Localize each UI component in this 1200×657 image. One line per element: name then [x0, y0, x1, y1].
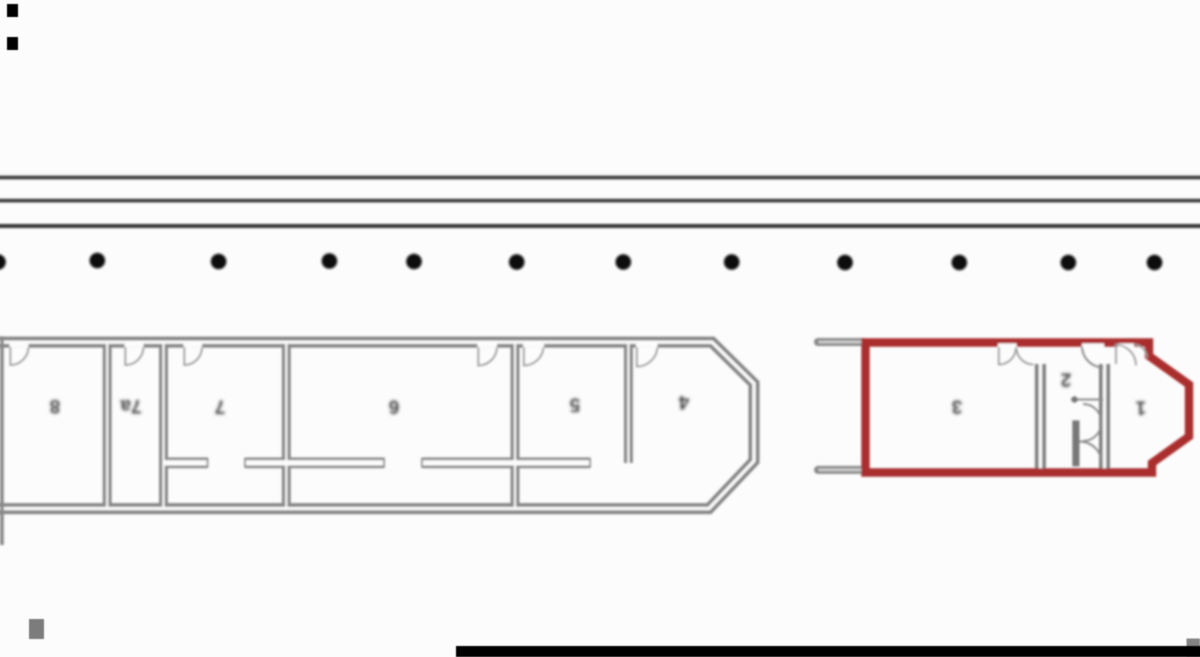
svg-text:4: 4: [678, 391, 689, 412]
svg-text:2: 2: [1061, 369, 1072, 390]
svg-text:7a: 7a: [120, 395, 142, 416]
svg-text:6: 6: [389, 396, 400, 417]
svg-text:7: 7: [215, 396, 226, 417]
svg-text:1: 1: [1135, 397, 1146, 418]
svg-text:3: 3: [952, 396, 963, 417]
svg-text:8: 8: [50, 395, 61, 416]
svg-text:5: 5: [569, 394, 580, 415]
